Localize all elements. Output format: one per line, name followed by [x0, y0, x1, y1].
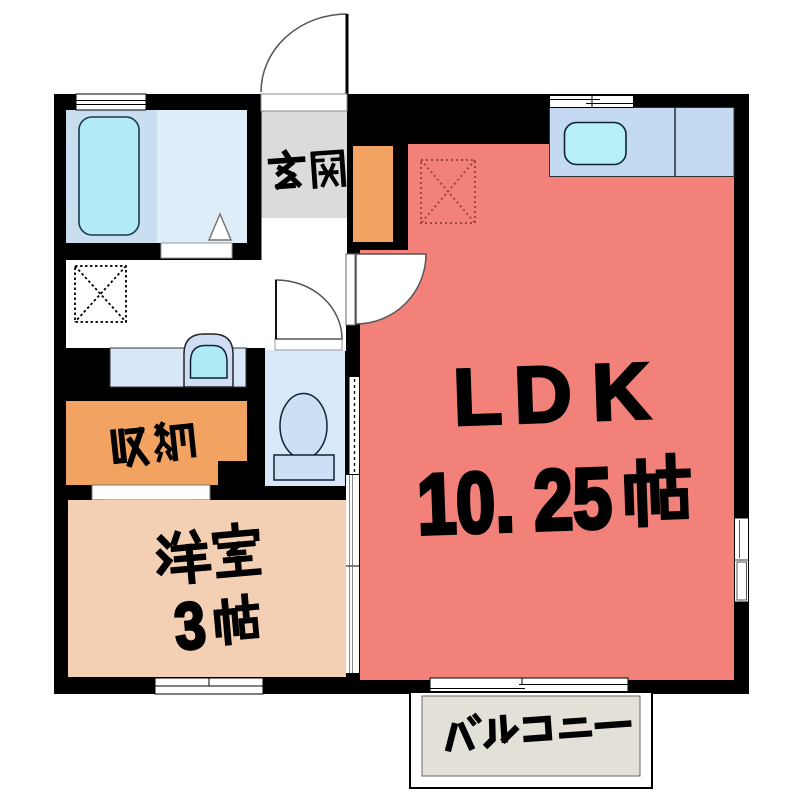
svg-text:3: 3 [171, 588, 208, 664]
svg-text:K: K [590, 346, 651, 437]
svg-text:D: D [513, 349, 574, 440]
svg-text:L: L [452, 351, 504, 442]
svg-text:10. 25: 10. 25 [416, 450, 614, 553]
